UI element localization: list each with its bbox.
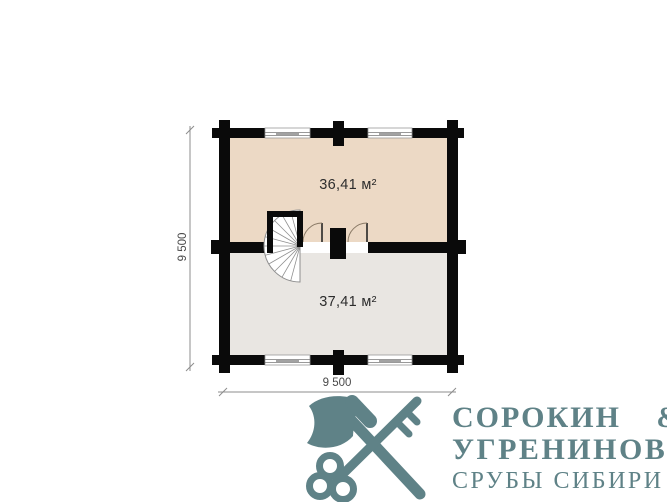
log-end-left-middle [211, 240, 230, 254]
log-end-top-middle [333, 121, 344, 146]
window [368, 355, 412, 365]
middle-wall-left-segment [230, 242, 268, 253]
vertical-dimension-label: 9 500 [177, 225, 191, 269]
logo-tagline: СРУБЫ СИБИРИ [452, 468, 664, 495]
window [265, 128, 310, 138]
middle-wall-right-segment [368, 242, 447, 253]
logo-name-line2: УГРЕНИНОВ [452, 433, 667, 467]
log-end-right-middle [447, 240, 466, 254]
log-end-bottom-middle [333, 350, 344, 375]
upper-room-area-label: 36,41 м² [298, 177, 398, 193]
window [368, 128, 412, 138]
crossed-axe-and-key-icon [307, 396, 420, 499]
floor-plan-page: 36,41 м² 37,41 м² 9 500 9 500 СОРОКИН & … [0, 0, 667, 502]
horizontal-dimension-label: 9 500 [307, 377, 367, 389]
window [265, 355, 310, 365]
wall-pier [330, 228, 346, 259]
lower-room-area-label: 37,41 м² [298, 294, 398, 310]
logo-name-line1: СОРОКИН & [452, 401, 667, 435]
